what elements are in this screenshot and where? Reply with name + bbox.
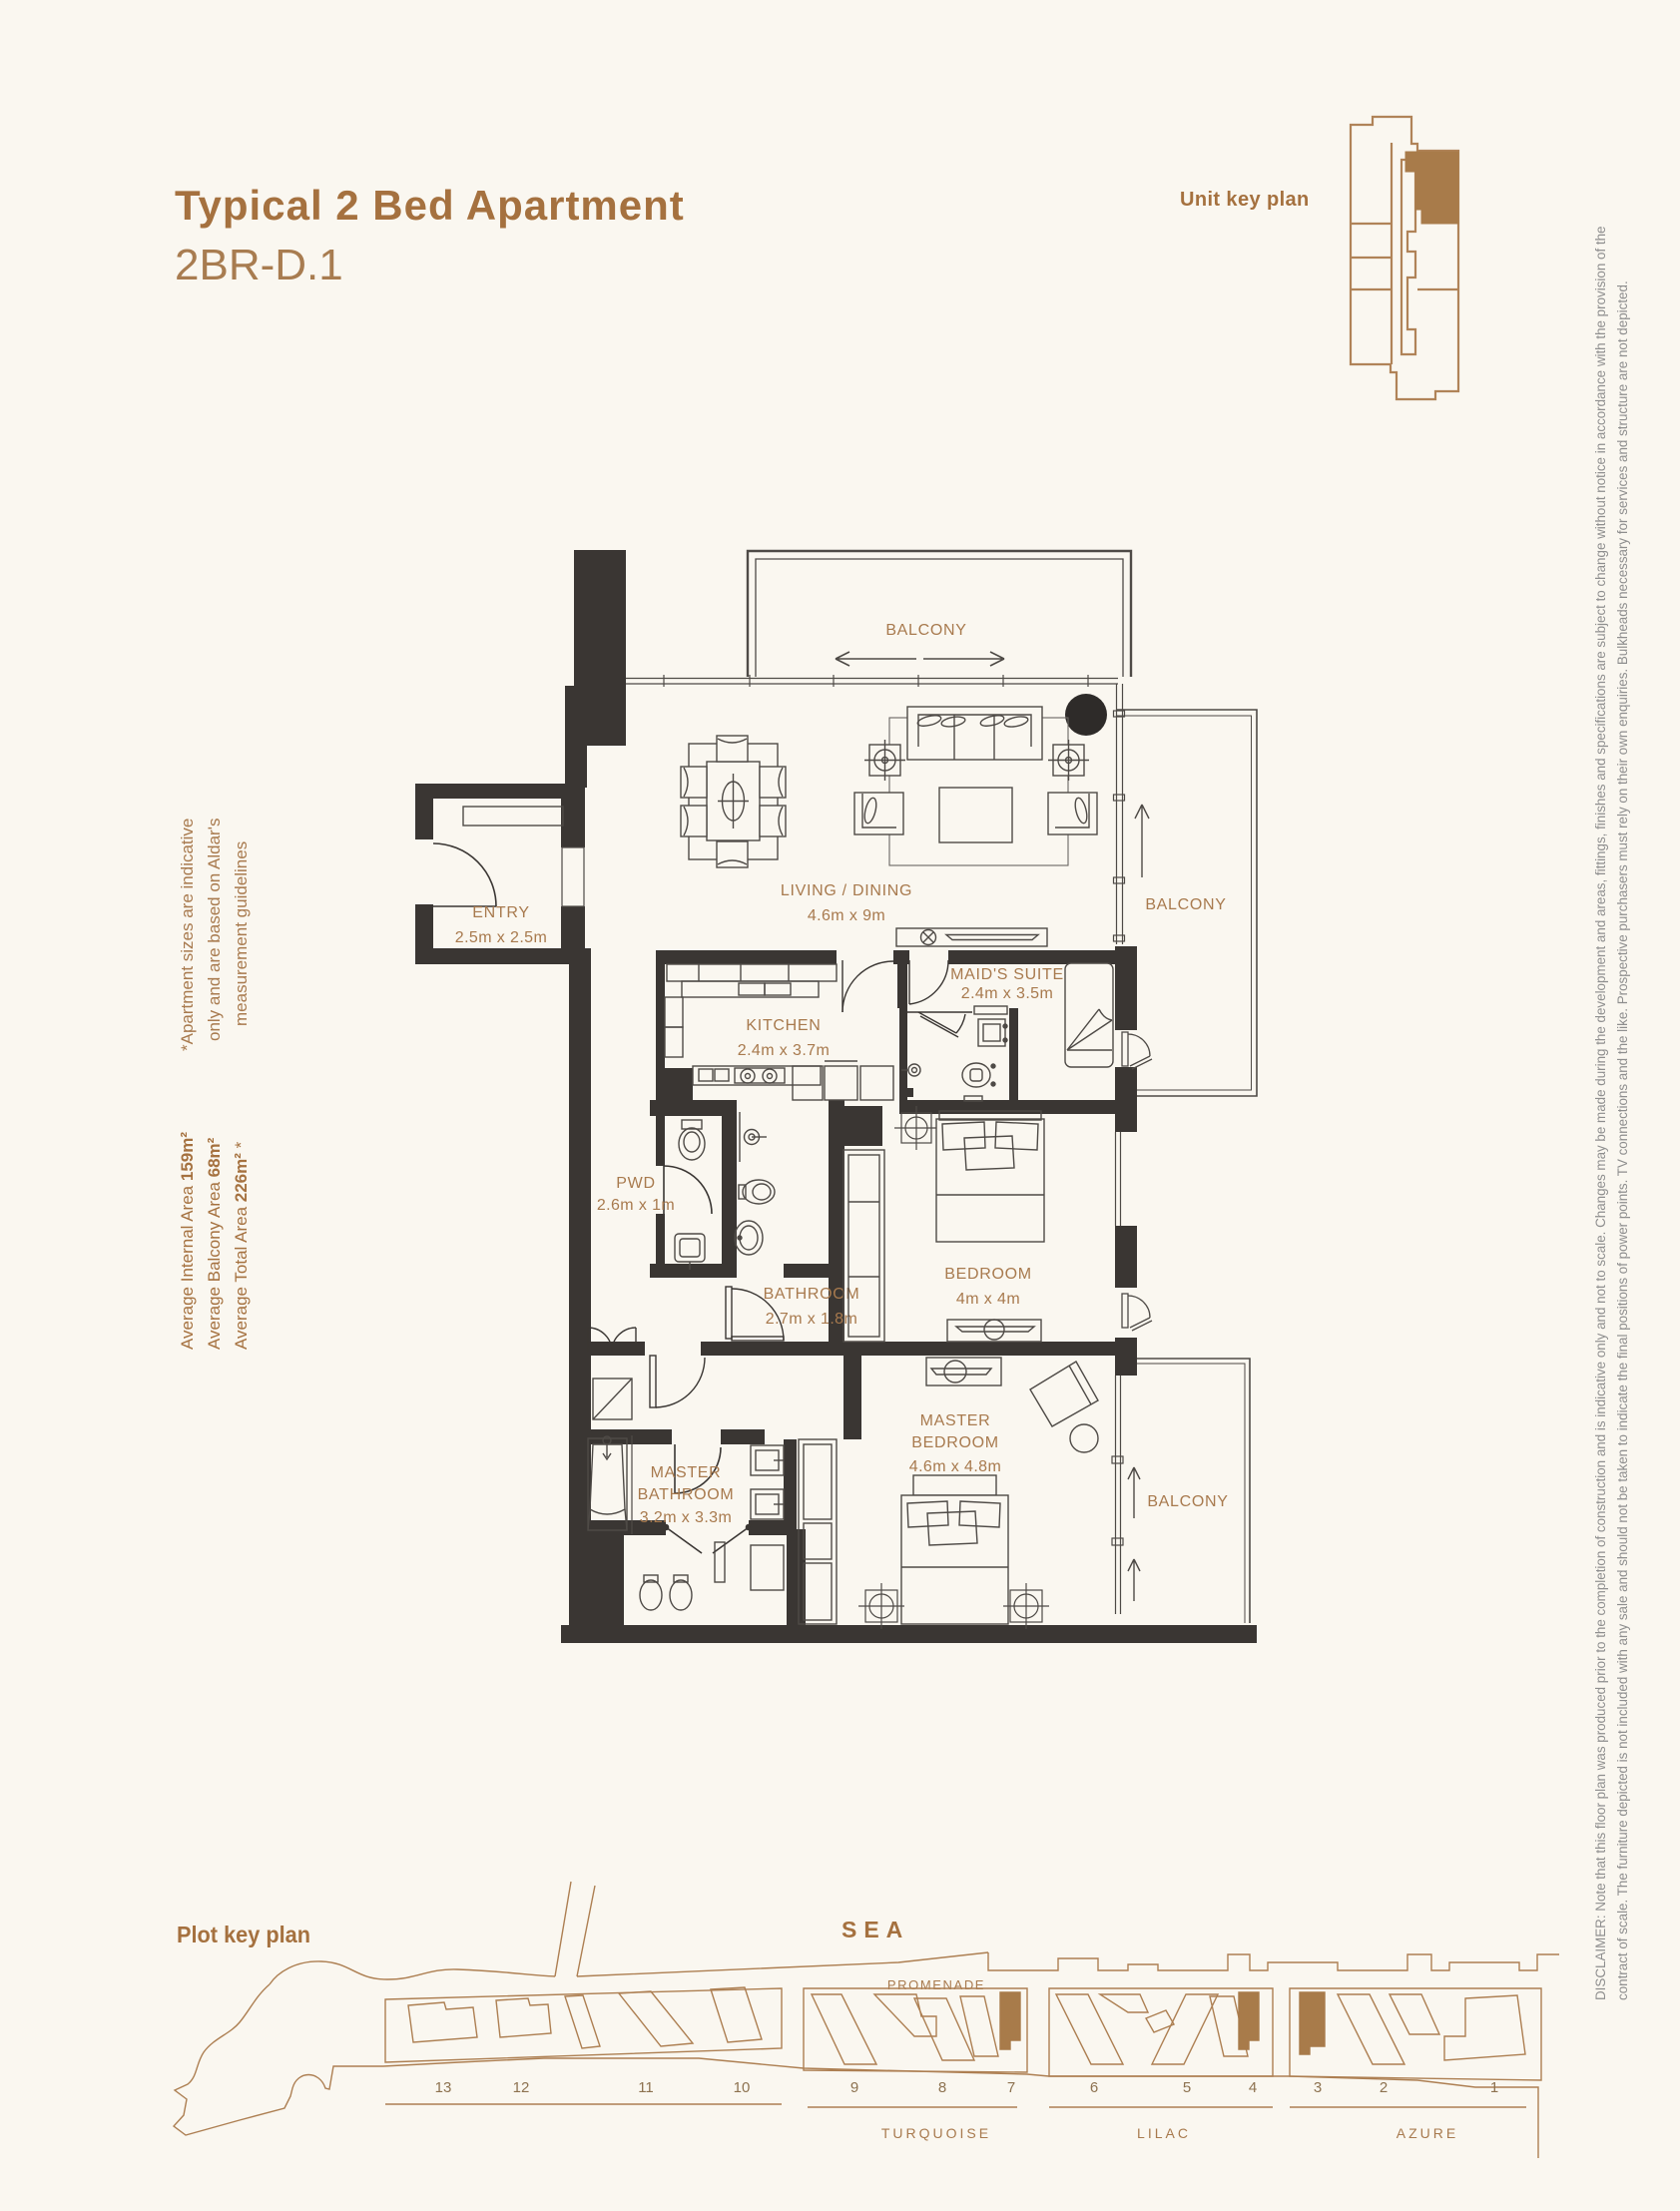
svg-text:BATHROOM: BATHROOM (638, 1486, 735, 1503)
svg-text:11: 11 (638, 2079, 654, 2096)
svg-text:Typical 2 Bed Apartment: Typical 2 Bed Apartment (175, 182, 685, 229)
svg-text:BALCONY: BALCONY (1147, 1493, 1228, 1510)
svg-text:7: 7 (1007, 2079, 1015, 2096)
svg-text:Average Balcony Area 68m²: Average Balcony Area 68m² (205, 1137, 224, 1350)
svg-text:4.6m x 9m: 4.6m x 9m (808, 907, 885, 924)
svg-text:DISCLAIMER: Note that this flo: DISCLAIMER: Note that this floor plan wa… (1593, 227, 1608, 2001)
svg-text:BATHROOM: BATHROOM (764, 1286, 860, 1303)
svg-text:2.6m x 1m: 2.6m x 1m (597, 1197, 675, 1214)
svg-text:2: 2 (1380, 2079, 1388, 2096)
svg-text:2BR-D.1: 2BR-D.1 (175, 241, 343, 289)
svg-text:SEA: SEA (841, 1917, 909, 1942)
svg-text:contract of scale. The furnitu: contract of scale. The furniture depicte… (1615, 280, 1630, 2000)
svg-text:PROMENADE: PROMENADE (887, 1977, 985, 1992)
svg-text:*Apartment sizes are indicativ: *Apartment sizes are indicative (178, 819, 197, 1051)
svg-text:3: 3 (1314, 2079, 1322, 2096)
svg-text:MAID'S SUITE: MAID'S SUITE (950, 966, 1064, 983)
svg-text:1: 1 (1490, 2079, 1498, 2096)
svg-text:9: 9 (850, 2079, 858, 2096)
svg-text:BEDROOM: BEDROOM (944, 1266, 1032, 1283)
svg-text:measurement guidelines: measurement guidelines (232, 841, 251, 1026)
svg-text:LIVING / DINING: LIVING / DINING (781, 882, 912, 899)
svg-text:MASTER: MASTER (920, 1412, 991, 1429)
svg-text:Average Total Area 226m² *: Average Total Area 226m² * (232, 1141, 251, 1350)
svg-text:12: 12 (513, 2079, 530, 2096)
svg-text:4m x 4m: 4m x 4m (956, 1291, 1020, 1308)
svg-text:LILAC: LILAC (1137, 2125, 1191, 2141)
svg-text:Plot key plan: Plot key plan (177, 1922, 310, 1947)
svg-text:3.2m x 3.3m: 3.2m x 3.3m (640, 1509, 732, 1526)
svg-text:BALCONY: BALCONY (1145, 896, 1226, 913)
svg-text:MASTER: MASTER (651, 1464, 722, 1481)
svg-text:BEDROOM: BEDROOM (911, 1434, 999, 1451)
svg-text:BALCONY: BALCONY (885, 622, 966, 639)
svg-text:Average Internal Area 159m²: Average Internal Area 159m² (178, 1132, 197, 1350)
svg-text:ENTRY: ENTRY (472, 904, 529, 921)
svg-text:6: 6 (1090, 2079, 1098, 2096)
svg-text:4: 4 (1249, 2079, 1257, 2096)
svg-text:PWD: PWD (616, 1175, 655, 1192)
svg-text:2.5m x 2.5m: 2.5m x 2.5m (455, 929, 547, 946)
svg-text:only and are based on Aldar's: only and are based on Aldar's (205, 819, 224, 1041)
svg-text:13: 13 (435, 2079, 452, 2096)
svg-text:4.6m x 4.8m: 4.6m x 4.8m (909, 1458, 1001, 1475)
svg-text:10: 10 (734, 2079, 751, 2096)
svg-text:TURQUOISE: TURQUOISE (881, 2125, 991, 2141)
svg-text:AZURE: AZURE (1397, 2125, 1458, 2141)
svg-text:Unit key plan: Unit key plan (1180, 189, 1310, 211)
svg-text:KITCHEN: KITCHEN (746, 1017, 821, 1034)
svg-text:2.4m x 3.7m: 2.4m x 3.7m (738, 1042, 830, 1059)
svg-text:8: 8 (938, 2079, 946, 2096)
svg-text:5: 5 (1183, 2079, 1191, 2096)
svg-text:2.4m x 3.5m: 2.4m x 3.5m (961, 985, 1053, 1002)
